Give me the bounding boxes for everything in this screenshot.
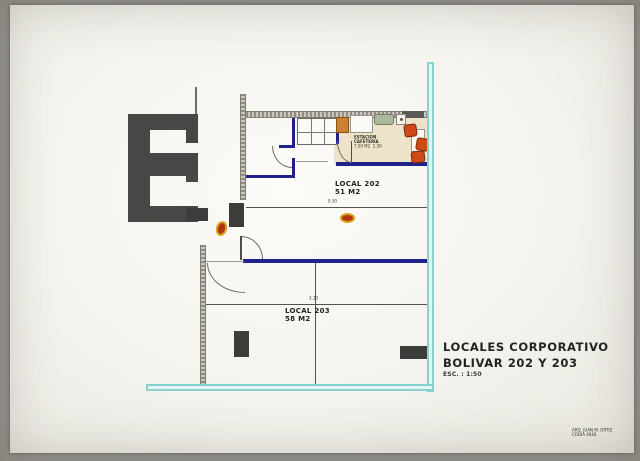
plant-marker-icon-1 [214,220,229,237]
cafeteria-sink [374,114,394,125]
door-swing-local203 [207,263,245,293]
door-leaf-middle [240,236,242,260]
door-sill-line [206,261,244,262]
title-line1: LOCALES CORPORATIVO [443,340,609,356]
plant-marker-icon-2 [340,213,355,223]
local202-label: LOCAL 202 51 M2 [335,181,380,196]
cafeteria-dim: 1.30 [373,144,382,149]
title-block: LOCALES CORPORATIVO BOLIVAR 202 Y 203 ES… [443,340,609,379]
cafeteria-dims: 7.50 M2 1.30 [354,144,382,149]
core-wall-arm-top [150,114,198,130]
column-4 [400,346,429,359]
cafeteria-chair-1 [403,123,418,138]
cafeteria-chair-3 [411,150,426,163]
line-local202-south [246,207,427,208]
core-wall-arm-middle [150,153,198,176]
cafeteria-label: ESTACION CAFETERIA 7.50 M2 1.30 [354,135,382,149]
column-2 [229,203,244,227]
glazed-partition-grid [297,118,337,145]
door-swing-middle [241,236,263,259]
core-wall-tab-top [186,130,198,143]
cafeteria-cabinet [336,117,349,133]
dimension-030: 0.30 [328,199,337,204]
masonry-wall-left-lower [200,245,206,386]
title-line2: BOLIVAR 202 Y 203 [443,356,609,372]
cafeteria-area: 7.50 M2 [354,144,370,149]
column-1 [186,208,208,221]
line-local203-north [206,304,427,305]
blue-wall-room-bottom [246,175,295,178]
cafeteria-appliance [396,114,406,125]
blue-wall-room-right [292,118,295,148]
core-wall-tab-middle [186,176,198,182]
local202-area: 51 M2 [335,189,380,197]
core-wall-vertical [128,114,150,222]
dimension-310: 3.10 [309,296,318,301]
local203-label: LOCAL 203 58 M2 [285,308,330,323]
scale-note: ESC. : 1:50 [443,371,609,379]
drawing-sheet: LOCAL 202 51 M2 LOCAL 203 58 M2 ESTACION… [10,5,634,453]
floor-plan: LOCAL 202 51 M2 LOCAL 203 58 M2 ESTACION… [0,0,640,461]
door-swing-small-room [272,146,292,168]
door-leaf-cafeteria [351,141,352,163]
local203-area: 58 M2 [285,316,330,324]
photographed-drawing: LOCAL 202 51 M2 LOCAL 203 58 M2 ESTACION… [0,0,640,461]
core-stub-line [195,87,197,114]
blue-wall-room-right-lower [292,158,295,178]
architect-signature: ARQ. JUAN M. ORTIZ CODIA 4646 [572,428,612,437]
column-3 [234,331,249,357]
signature-line2: CODIA 4646 [572,433,612,438]
cafeteria-fridge [350,115,373,133]
appliance-knob-icon [400,118,403,121]
blue-wall-middle [243,259,427,263]
masonry-wall-left-upper [240,94,246,200]
glazing-line-vertical [427,62,434,392]
leader-line [296,161,328,162]
glazing-line-bottom [146,384,434,391]
gridline-local203 [315,263,316,385]
